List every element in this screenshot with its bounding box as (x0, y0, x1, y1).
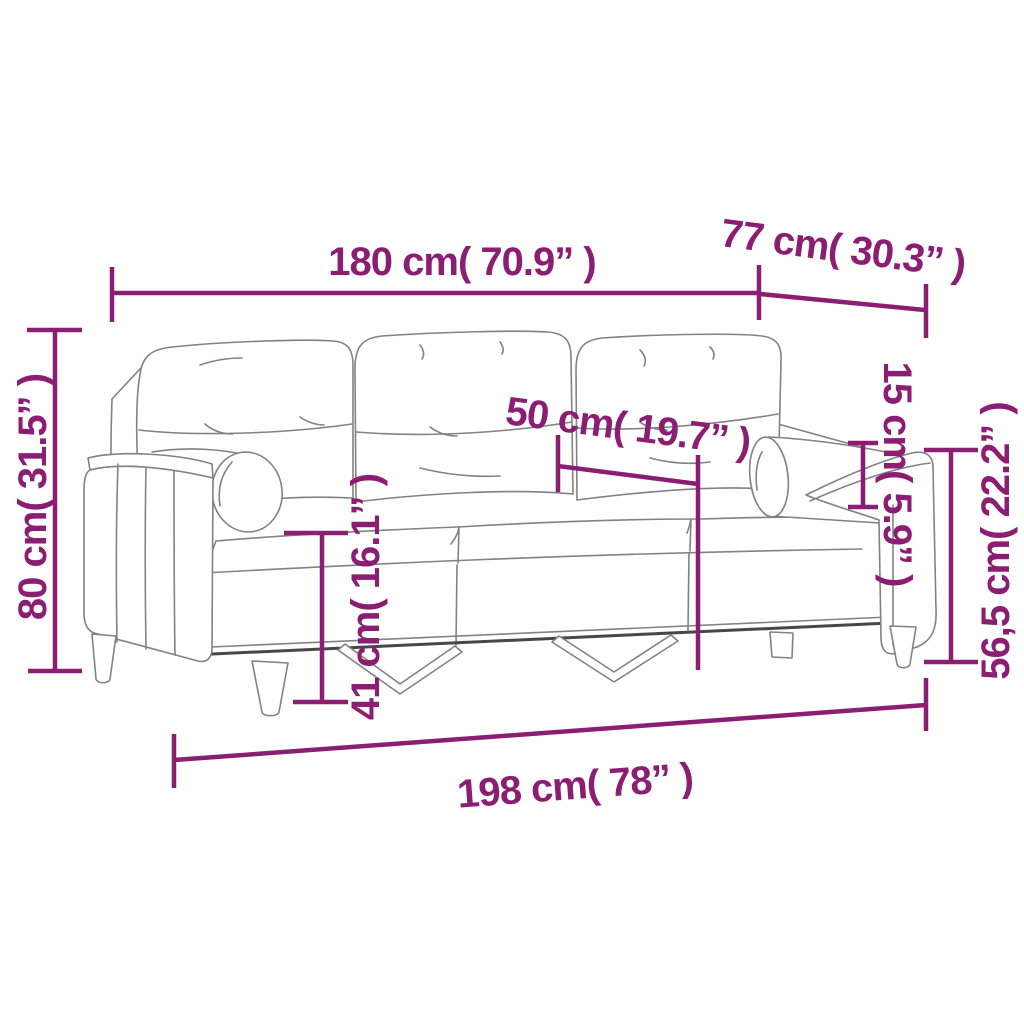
wood-leg-front-left (92, 634, 116, 683)
wood-leg-front-right (890, 626, 916, 668)
wood-leg-front-left-inner (252, 661, 288, 716)
dimension-label-back-height: 80 cm( 31.5” ) (13, 374, 53, 620)
back-leg (770, 632, 793, 658)
dimension-diagram: 180 cm( 70.9” ) 77 cm( 30.3” ) 80 cm( 31… (0, 0, 1024, 1024)
dimension-line-seat-height (284, 533, 348, 702)
metal-sled-leg-right (552, 635, 678, 682)
dimension-label-seat-width: 180 cm( 70.9” ) (328, 242, 595, 282)
dimension-label-seat-height: 41 cm( 16.1” ) (346, 474, 386, 720)
dimension-label-pillow: 15 cm( 5.9” ) (877, 362, 917, 587)
left-armrest (84, 454, 213, 662)
diagram-svg (0, 0, 1024, 1024)
dimension-label-arm-height: 56,5 cm( 22.2” ) (976, 402, 1016, 680)
